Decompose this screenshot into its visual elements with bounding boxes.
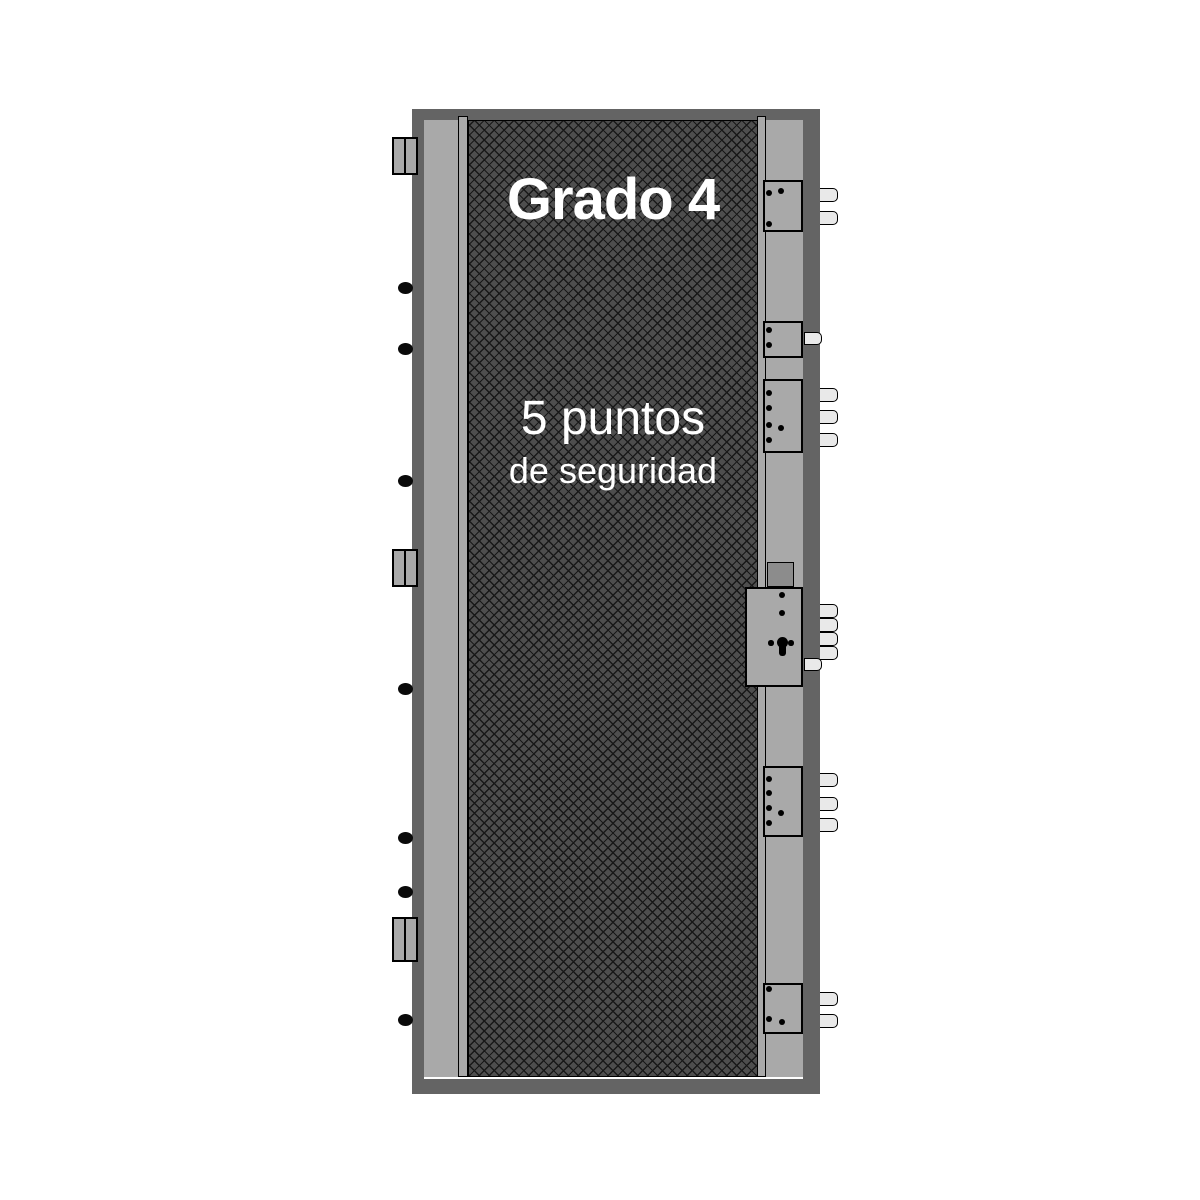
hinge-pin (398, 832, 413, 844)
deadbolt (804, 332, 822, 345)
deadbolt (819, 1014, 838, 1028)
main-lock-case (745, 587, 803, 687)
deadbolt (819, 646, 838, 660)
door-panel: Grado 4 5 puntos de seguridad (468, 120, 758, 1077)
hinge-divider (404, 139, 406, 173)
door-bottom-frame (412, 1079, 820, 1094)
deadbolt (819, 992, 838, 1006)
keyhole-side-dot (768, 640, 773, 645)
door-right-frame (803, 109, 820, 1094)
points-sub-label: de seguridad (469, 452, 757, 490)
screw-dot (766, 776, 772, 782)
screw-dot (766, 790, 772, 796)
deadbolt (804, 658, 822, 671)
screw-dot (766, 327, 772, 333)
screw-dot (766, 221, 772, 227)
keyhole-stem (779, 643, 786, 656)
hinge (392, 549, 418, 587)
screw-dot (766, 1016, 772, 1022)
deadbolt (819, 388, 838, 402)
screw-dot (766, 805, 772, 811)
lock-dark-block (767, 562, 794, 587)
deadbolt (819, 632, 838, 646)
hinge-pin (398, 1014, 413, 1026)
deadbolt (819, 211, 838, 225)
hinge-pin (398, 683, 413, 695)
hinge-pin (398, 282, 413, 294)
screw-dot (778, 810, 784, 816)
screw-dot (766, 405, 772, 411)
screw-dot (766, 342, 772, 348)
screw-dot (766, 190, 772, 196)
deadbolt (819, 818, 838, 832)
left-edge-strip (458, 116, 468, 1077)
keyhole-side-dot (788, 640, 793, 645)
deadbolt (819, 604, 838, 618)
screw-dot (779, 592, 785, 598)
screw-dot (766, 390, 772, 396)
screw-dot (766, 986, 772, 992)
deadbolt (819, 410, 838, 424)
hinge-pin (398, 475, 413, 487)
deadbolt (819, 797, 838, 811)
screw-dot (778, 425, 784, 431)
hinge-divider (404, 551, 406, 585)
screw-dot (779, 1019, 785, 1025)
screw-dot (778, 188, 784, 194)
deadbolt (819, 188, 838, 202)
points-label: 5 puntos (469, 394, 757, 444)
product-image-stage: Grado 4 5 puntos de seguridad (0, 0, 1200, 1200)
hinge-pin (398, 886, 413, 898)
screw-dot (779, 610, 785, 616)
screw-dot (766, 820, 772, 826)
hinge-divider (404, 919, 406, 960)
deadbolt (819, 433, 838, 447)
screw-dot (766, 422, 772, 428)
deadbolt (819, 773, 838, 787)
grade-label: Grado 4 (469, 170, 757, 231)
hinge-pin (398, 343, 413, 355)
deadbolt (819, 618, 838, 632)
screw-dot (766, 437, 772, 443)
hinge (392, 917, 418, 962)
hinge (392, 137, 418, 175)
